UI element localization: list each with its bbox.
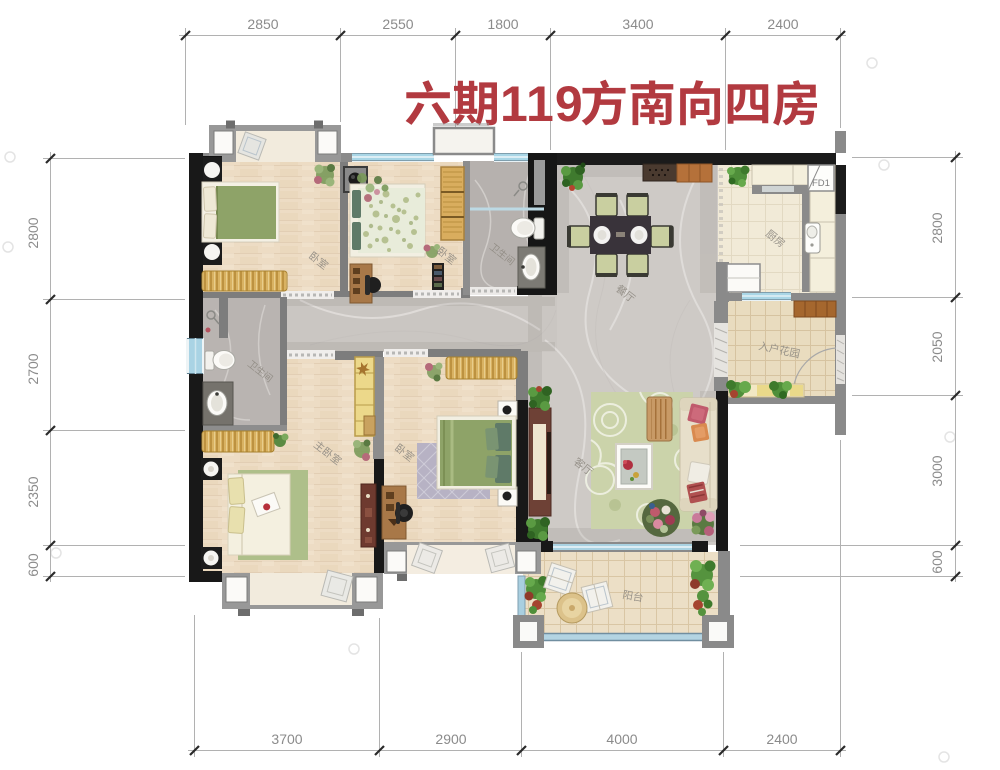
svg-text:600: 600 [929, 550, 945, 574]
svg-text:2850: 2850 [247, 16, 278, 32]
svg-text:2400: 2400 [767, 16, 798, 32]
svg-text:2700: 2700 [25, 353, 41, 384]
svg-text:4000: 4000 [606, 731, 637, 747]
svg-text:2400: 2400 [766, 731, 797, 747]
svg-text:2350: 2350 [25, 476, 41, 507]
svg-text:3000: 3000 [929, 455, 945, 486]
svg-text:2800: 2800 [25, 217, 41, 248]
svg-text:2050: 2050 [929, 331, 945, 362]
svg-text:2550: 2550 [382, 16, 413, 32]
svg-text:3400: 3400 [622, 16, 653, 32]
svg-text:600: 600 [25, 553, 41, 577]
svg-text:FD1: FD1 [812, 178, 830, 189]
svg-text:119: 119 [500, 76, 584, 132]
svg-text:1800: 1800 [487, 16, 518, 32]
svg-text:2800: 2800 [929, 212, 945, 243]
svg-text:2900: 2900 [435, 731, 466, 747]
svg-text:3700: 3700 [271, 731, 302, 747]
